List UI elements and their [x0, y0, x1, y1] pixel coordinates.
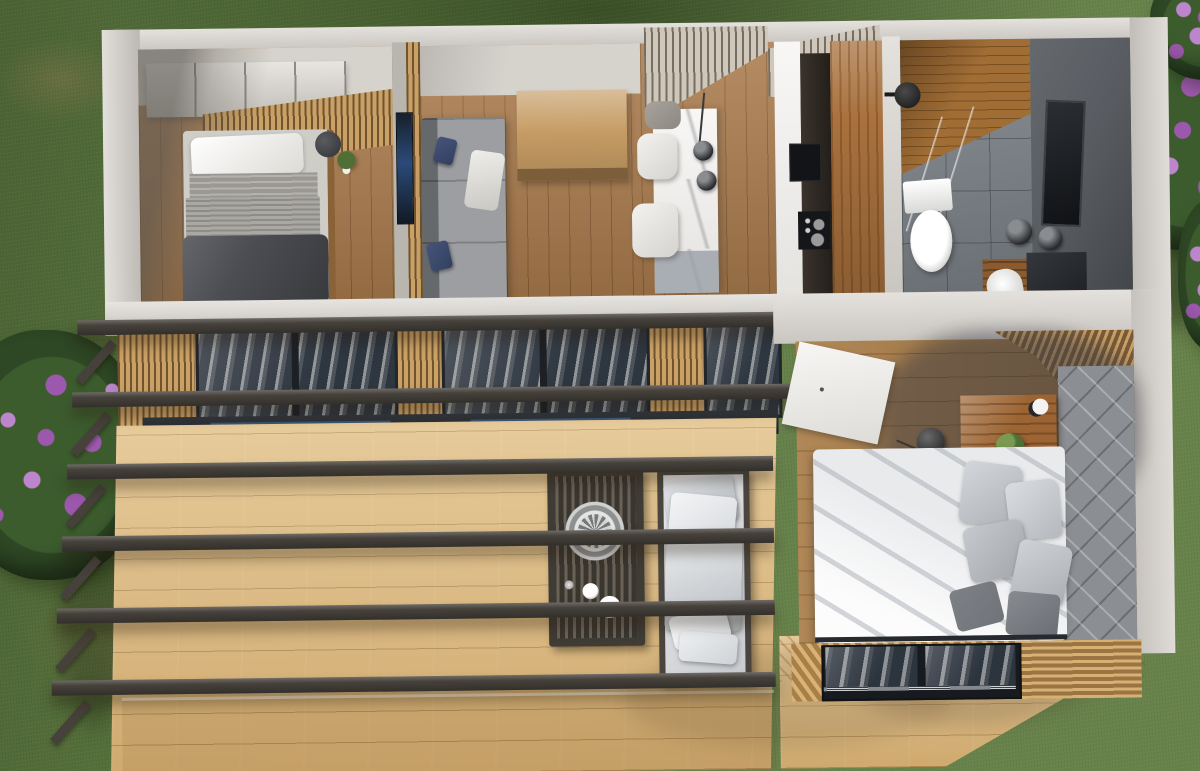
gray-sofa [421, 117, 507, 304]
bed1-dark-duvet [182, 234, 329, 306]
window-pane [925, 645, 1015, 686]
gray-chair [645, 101, 681, 129]
tv-screen [396, 112, 414, 224]
plate [582, 583, 598, 599]
door-handle [819, 387, 824, 392]
window-pane [825, 646, 917, 687]
bathroom-pendant-lamp [1006, 219, 1032, 245]
facade-slat-section [647, 317, 702, 416]
quilted-headboard-wall [1058, 365, 1137, 642]
pergola-post [76, 340, 117, 385]
toilet-tank [903, 178, 953, 214]
shower-head [894, 82, 920, 108]
glass-cup [564, 580, 573, 589]
aerial-render-scene [0, 0, 1200, 771]
sliding-glass-door [703, 318, 782, 419]
bedroom1-plant [337, 151, 355, 169]
dark-pillow [1005, 590, 1061, 639]
bedroom2-right-wall [1131, 289, 1175, 653]
wall-oven [789, 143, 821, 181]
bathroom-mirror [1041, 100, 1086, 228]
building-group [0, 0, 1200, 771]
toilet-bowl [910, 210, 953, 273]
pendant-lamp [693, 141, 713, 161]
pergola-post [55, 628, 96, 673]
pergola-post [71, 412, 112, 457]
exterior-wall-right [1130, 17, 1172, 317]
white-chair [637, 133, 678, 179]
wood-sideboard [516, 90, 627, 181]
facade-slat-section [141, 323, 194, 422]
living-room-top-wall [420, 43, 641, 96]
pergola-post [60, 556, 101, 601]
exterior-wall-left [102, 30, 144, 330]
pergola-post [65, 484, 106, 529]
wall-lamp [1032, 399, 1048, 415]
bench-pillow [678, 631, 738, 665]
bedroom2-facade-slats-right [1017, 639, 1142, 699]
facade-slat-section [395, 320, 440, 419]
pendant-lamp [696, 171, 716, 191]
tall-wood-cabinet [830, 40, 890, 297]
white-chair [632, 203, 679, 258]
round-side-table [315, 131, 341, 157]
cooktop [798, 211, 830, 249]
pergola-post [50, 700, 91, 745]
bathroom-pendant-lamp [1038, 226, 1062, 250]
bed1-pillow [190, 133, 304, 178]
